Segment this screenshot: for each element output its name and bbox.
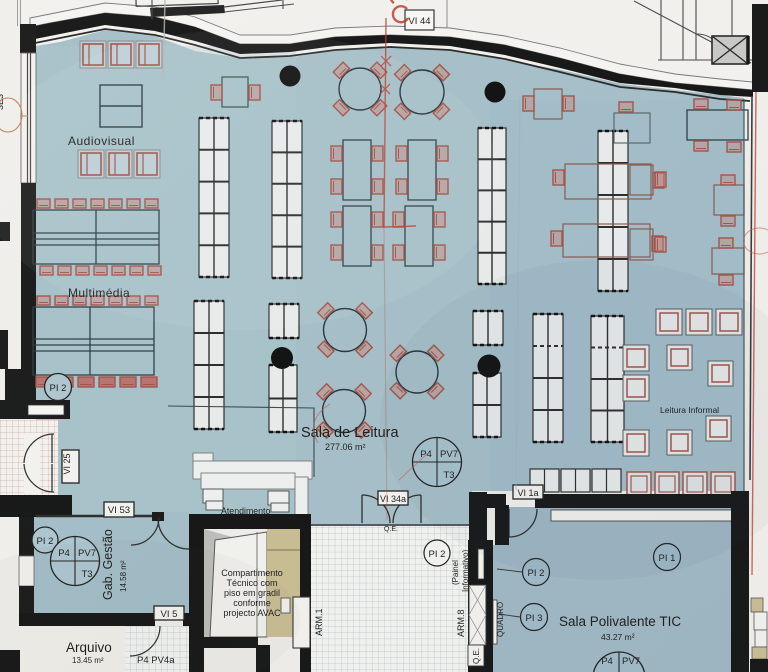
svg-text:13.45 m²: 13.45 m²: [72, 656, 104, 665]
svg-text:VI 34a: VI 34a: [380, 494, 406, 504]
svg-text:Técnico com: Técnico com: [226, 578, 277, 588]
svg-text:PI 3: PI 3: [526, 613, 543, 624]
svg-text:PI 1: PI 1: [659, 553, 676, 564]
svg-text:VI 5: VI 5: [161, 609, 178, 620]
svg-text:VI 44: VI 44: [408, 16, 430, 27]
svg-text:projecto AVAC: projecto AVAC: [223, 608, 281, 618]
svg-text:PI 2: PI 2: [37, 536, 54, 547]
svg-text:3Ε3: 3Ε3: [0, 94, 5, 110]
svg-text:Q.E.: Q.E.: [384, 526, 398, 533]
svg-text:Arquivo: Arquivo: [66, 640, 112, 655]
svg-text:43.27 m²: 43.27 m²: [601, 632, 635, 642]
svg-text:P4 PV4a: P4 PV4a: [137, 655, 175, 666]
svg-text:(Painel: (Painel: [451, 560, 460, 585]
svg-text:PV7: PV7: [440, 449, 458, 460]
svg-text:QUADRO: QUADRO: [496, 602, 505, 637]
svg-text:PV7: PV7: [78, 548, 96, 559]
svg-text:Sala Polivalente TIC: Sala Polivalente TIC: [559, 614, 681, 629]
svg-text:Informativo): Informativo): [461, 549, 470, 592]
svg-text:Compartimento: Compartimento: [221, 568, 283, 578]
svg-text:PI 2: PI 2: [528, 568, 545, 579]
svg-text:PI 2: PI 2: [429, 549, 446, 560]
svg-text:277.06 m²: 277.06 m²: [325, 442, 366, 452]
svg-text:Atendimento: Atendimento: [221, 506, 270, 516]
svg-text:conforme: conforme: [233, 598, 271, 608]
svg-text:Audiovisual: Audiovisual: [68, 134, 135, 148]
svg-text:Q.E.: Q.E.: [472, 648, 481, 664]
svg-text:Gab. Gestão: Gab. Gestão: [101, 529, 115, 600]
svg-text:T3: T3: [81, 569, 92, 580]
svg-text:VI 1a: VI 1a: [517, 488, 538, 498]
svg-text:P4: P4: [58, 548, 70, 559]
svg-text:PV7: PV7: [622, 656, 640, 667]
svg-text:Multimédia: Multimédia: [68, 286, 130, 300]
svg-text:14.58 m²: 14.58 m²: [119, 560, 128, 592]
svg-text:ARM.1: ARM.1: [314, 608, 324, 636]
svg-text:T3: T3: [443, 470, 454, 481]
svg-text:Leitura Informal: Leitura Informal: [660, 405, 719, 415]
svg-text:P4: P4: [601, 656, 613, 667]
svg-text:PI 2: PI 2: [50, 383, 67, 394]
svg-text:ARM.8: ARM.8: [456, 609, 466, 637]
svg-text:piso em gradil: piso em gradil: [224, 588, 280, 598]
svg-text:VI 25: VI 25: [62, 453, 72, 474]
svg-text:VI 53: VI 53: [108, 505, 130, 516]
